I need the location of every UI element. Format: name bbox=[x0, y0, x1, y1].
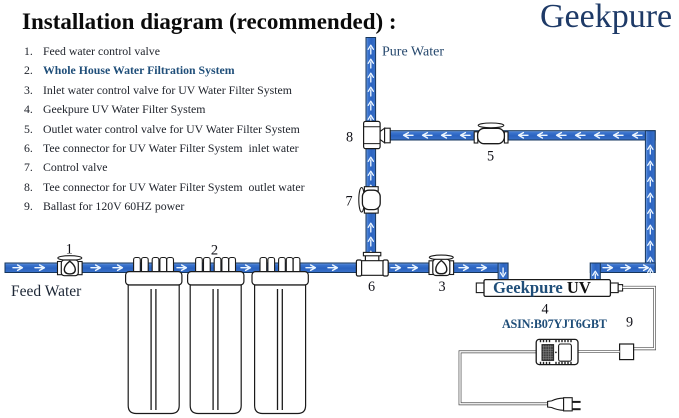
svg-text:Geekpure UV: Geekpure UV bbox=[493, 278, 591, 297]
svg-text:8: 8 bbox=[346, 129, 353, 145]
svg-text:5: 5 bbox=[487, 149, 494, 165]
svg-text:ASIN:B07YJT6GBT: ASIN:B07YJT6GBT bbox=[502, 317, 607, 331]
svg-text:Feed Water: Feed Water bbox=[11, 283, 82, 300]
svg-text:3: 3 bbox=[438, 279, 445, 295]
svg-text:4: 4 bbox=[541, 302, 548, 318]
svg-text:7: 7 bbox=[345, 194, 352, 210]
svg-text:9: 9 bbox=[626, 315, 633, 331]
svg-text:1: 1 bbox=[66, 242, 73, 258]
svg-text:Pure Water: Pure Water bbox=[382, 45, 444, 60]
svg-text:6: 6 bbox=[368, 279, 375, 295]
svg-text:2: 2 bbox=[211, 243, 218, 259]
